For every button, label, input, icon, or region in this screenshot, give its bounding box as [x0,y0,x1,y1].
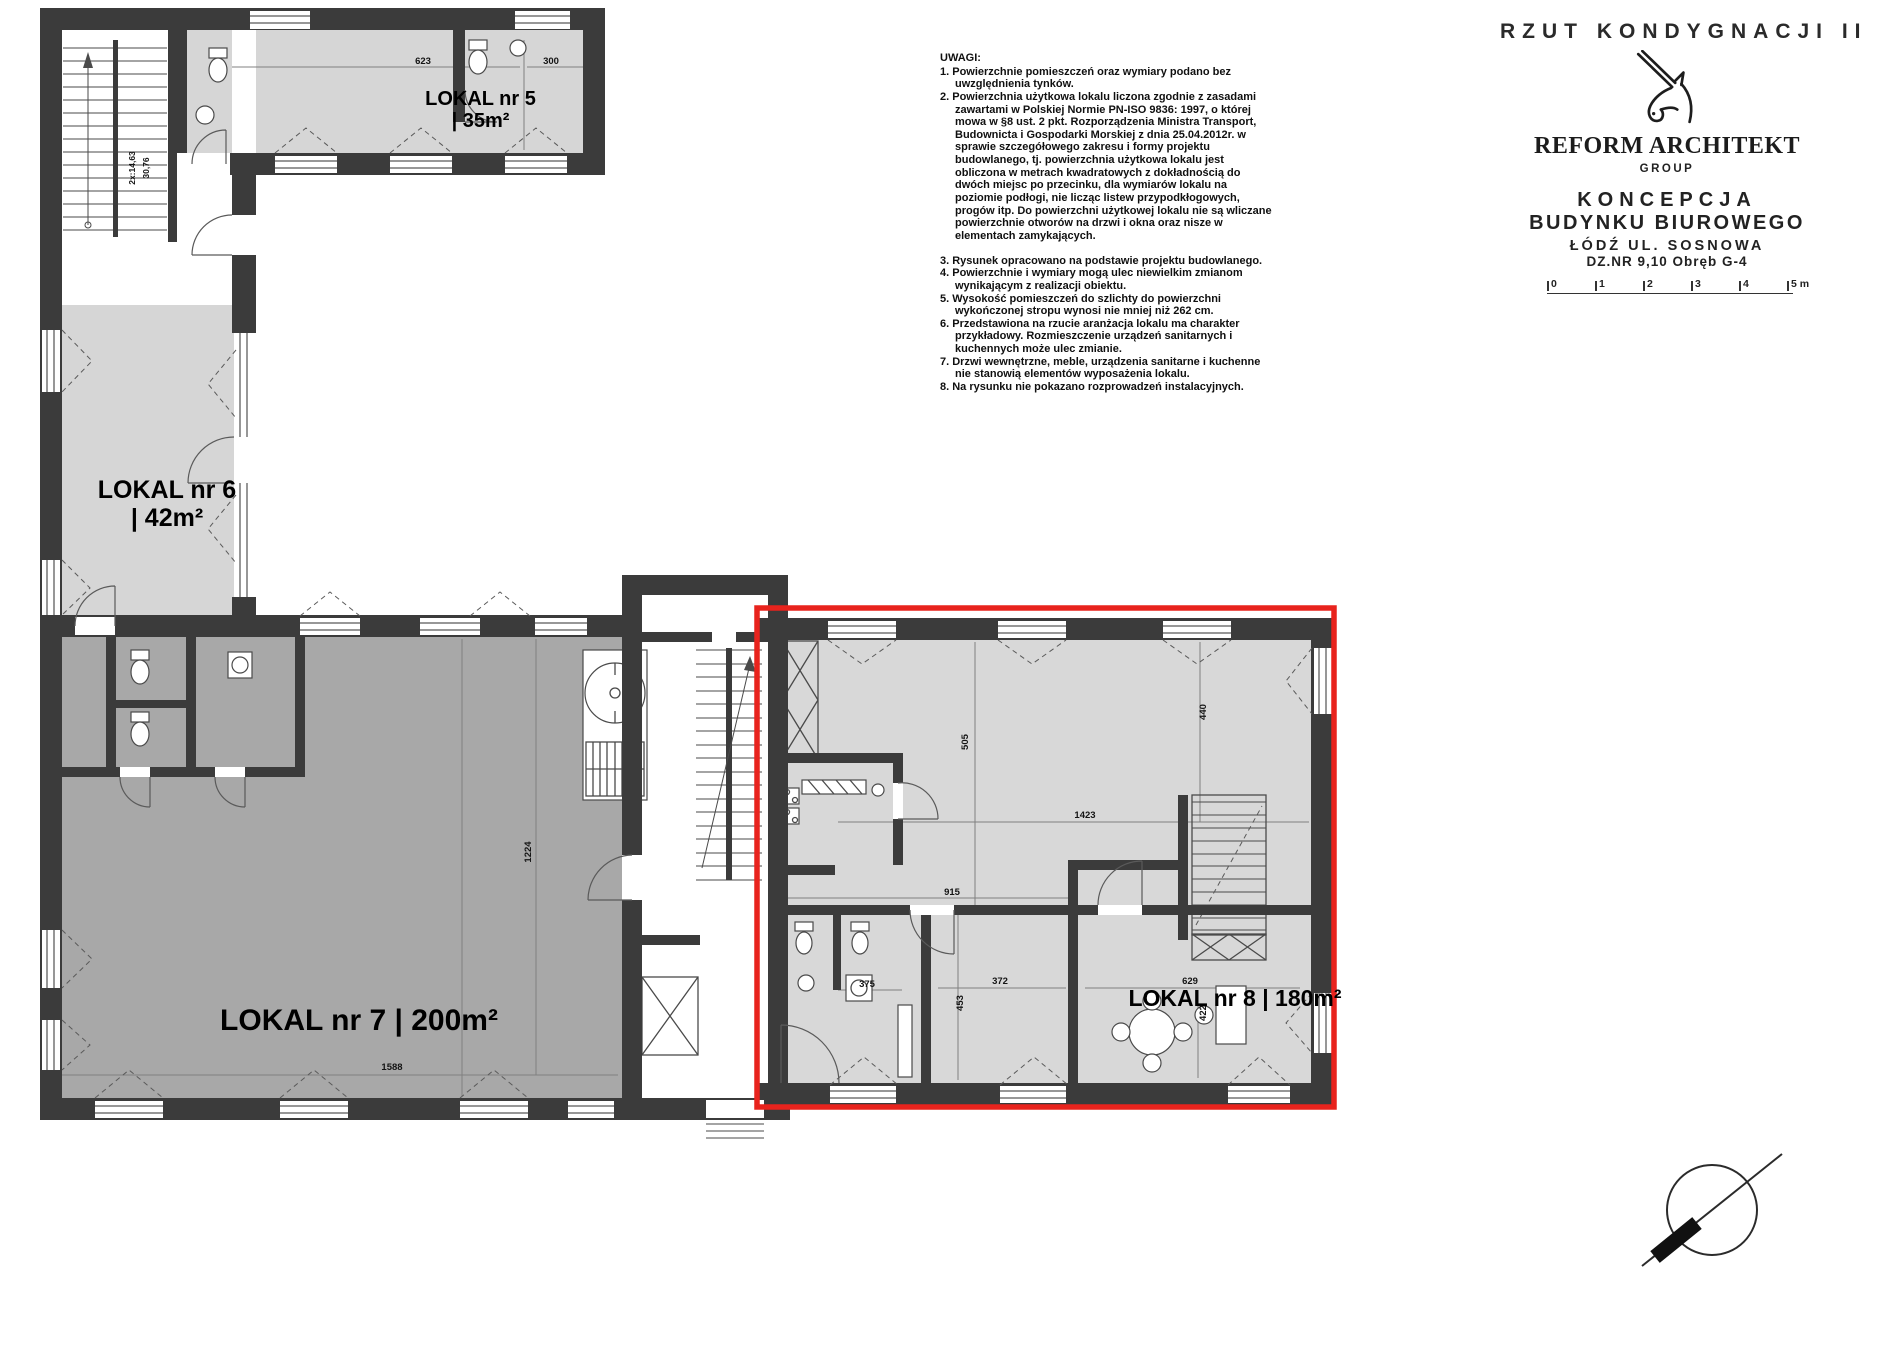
note-item: 8. Na rysunku nie pokazano rozprowadzeń … [940,381,1273,394]
dim-375: 375 [859,979,876,990]
north-arrow-icon [1642,1154,1782,1266]
address-line1: ŁÓDŹ UL. SOSNOWA [1500,238,1834,254]
firm-sub: GROUP [1500,163,1834,175]
dim-453: 453 [955,995,966,1011]
scale-tick-0: 0 [1551,278,1557,290]
notes-heading: UWAGI: [940,52,1273,65]
toilet-icon [131,650,149,660]
toilet-icon [131,712,149,722]
scale-tick-3: 3 [1695,278,1701,290]
lokal-6-room [62,305,234,615]
door-leaf [898,1005,912,1077]
dim-1423: 1423 [1074,810,1095,821]
lokal-6-name: LOKAL nr 6 [77,477,257,505]
note-item: 4. Powierzchnie i wymiary mogą ulec niew… [940,267,1273,292]
dim-1224: 1224 [523,841,534,863]
note-item: 7. Drzwi wewnętrzne, meble, urządzenia s… [940,356,1273,381]
sink-icon [872,784,884,796]
note-item: 3. Rysunek opracowano na podstawie proje… [940,255,1273,268]
exterior-steps [706,1124,764,1138]
lokal-5-name: LOKAL nr 5 [398,88,563,110]
lokal-6-label: LOKAL nr 6 | 42m² [77,477,257,532]
chair-icon [1143,1054,1161,1072]
scale-tick-5: 5 m [1791,278,1809,290]
note-item: 6. Przedstawiona na rzucie aranżacja lok… [940,318,1273,356]
scale-tick-2: 2 [1647,278,1653,290]
title-block: RZUT KONDYGNACJI II REFORM ARCHITEKT GRO… [1500,20,1834,269]
chair-icon [1174,1023,1192,1041]
dim-372: 372 [992,976,1008,987]
drawing-title: RZUT KONDYGNACJI II [1500,20,1834,44]
toilet-icon [795,922,813,931]
project-title-line2: BUDYNKU BIUROWEGO [1500,212,1834,235]
note-item: 2. Powierzchnia użytkowa lokalu liczona … [940,91,1273,243]
lokal-5-area: | 35m² [398,110,563,132]
stairwell-left [63,30,177,242]
scale-bar: 0 1 2 3 4 5 m [1547,278,1799,300]
stair-dim-a: 2x:14,63 [127,151,137,185]
firm-name: REFORM ARCHITEKT [1500,133,1834,160]
toilet-icon [209,48,227,58]
sink-icon [798,975,814,991]
notes-block: UWAGI: 1. Powierzchnie pomieszczeń oraz … [940,52,1273,394]
dim-505: 505 [960,733,971,750]
toilet-icon [851,922,869,931]
dim-440: 440 [1198,704,1209,720]
address-line2: DZ.NR 9,10 Obręb G-4 [1500,254,1834,269]
dim-915: 915 [944,887,961,898]
lokal-6-area: | 42m² [77,505,257,533]
dim-623: 623 [415,56,431,67]
dim-300: 300 [543,56,559,67]
unicorn-logo-icon [1630,50,1704,126]
chair-icon [1112,1023,1130,1041]
round-table-icon [1129,1009,1175,1055]
scale-tick-1: 1 [1599,278,1605,290]
note-item: 1. Powierzchnie pomieszczeń oraz wymiary… [940,66,1273,91]
note-item: 5. Wysokość pomieszczeń do szlichty do p… [940,293,1273,318]
dim-1588: 1588 [381,1062,402,1073]
sink-icon [510,40,526,56]
floorplan-sheet: { "title_block": { "drawing_title": "RZU… [0,0,1881,1364]
sink-icon [196,106,214,124]
stair-dim-b: 30,76 [141,157,151,179]
lokal-8-label: LOKAL nr 8 | 180m² [1128,986,1342,1011]
scale-tick-4: 4 [1743,278,1749,290]
lokal-5-label: LOKAL nr 5 | 35m² [398,88,563,132]
lokal-7-label: LOKAL nr 7 | 200m² [208,1004,510,1037]
toilet-icon [469,40,487,50]
project-title-line1: KONCEPCJA [1500,189,1834,212]
